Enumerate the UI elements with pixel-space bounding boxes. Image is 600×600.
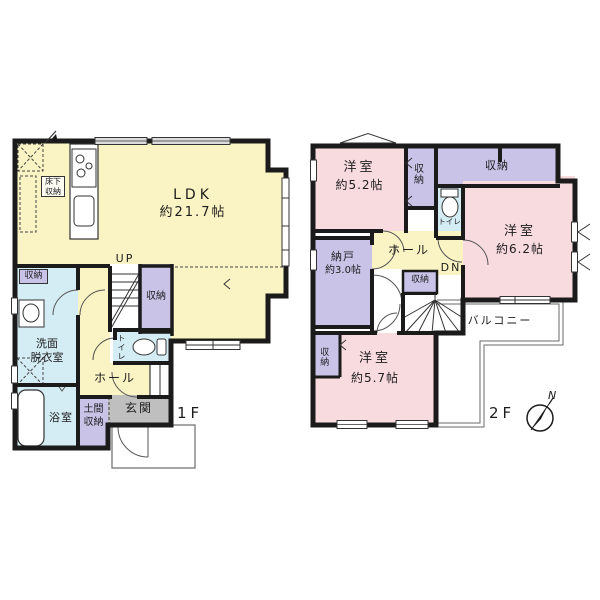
gable-vent-icon (340, 134, 396, 144)
shoe-closet (150, 364, 171, 396)
corner-flag-icon (45, 131, 58, 143)
label-toilet-2f: トイレ (435, 217, 464, 226)
room-label-bedroom-a-size: 約5.2帖 (308, 178, 411, 193)
label-bedroom-c-closet: 収納 (317, 340, 328, 374)
washroom-line1: 洗面 (14, 337, 80, 351)
room-label-bedroom-c-size: 約5.7帖 (325, 371, 425, 386)
sink-icon (74, 196, 94, 226)
floor-label-1f: 1F (177, 404, 203, 423)
room-label-bedroom-b-name: 洋室 (475, 224, 565, 240)
floor-label-2f: 2F (489, 404, 515, 423)
doma-line1: 土間 (79, 404, 108, 417)
label-stairs-down: DN (431, 261, 471, 275)
label-underfloor-storage: 床下収納 (41, 176, 65, 197)
label-closet-a: 収納 (410, 152, 423, 196)
compass-icon (527, 398, 553, 431)
label-doma-storage: 土間収納 (79, 404, 108, 429)
toilet-fixture-1f (133, 339, 166, 355)
kitchen-counter (70, 144, 98, 239)
room-label-storage-room-name: 納戸 (320, 250, 366, 264)
underfloor-storage-line1: 床下 (42, 177, 64, 187)
closet-a-front (404, 210, 436, 233)
washbasin-icon (19, 300, 44, 327)
room-label-bedroom-c-name: 洋室 (330, 351, 420, 367)
doma-line2: 収納 (79, 417, 108, 430)
entrance-porch (112, 425, 195, 468)
floor-plan-canvas: LDK 約21.7帖 床下収納 UP 収納 収納 洗面脱衣室 トイレ ホール 浴… (0, 0, 600, 600)
stove-icon (72, 149, 96, 187)
room-label-bathroom: 浴室 (43, 411, 79, 425)
floor-plan-drawing (0, 0, 600, 600)
washroom-line2: 脱衣室 (14, 351, 80, 365)
room-label-ldk-size: 約21.7帖 (133, 205, 253, 221)
underfloor-storage-line2: 収納 (42, 187, 64, 197)
toilet-fixture-2f (441, 189, 458, 217)
room-label-storage-room-size: 約3.0帖 (313, 265, 373, 278)
room-label-ldk-name: LDK (143, 187, 243, 205)
label-stair-closet: 収納 (140, 291, 172, 304)
room-label-bedroom-b-size: 約6.2帖 (470, 242, 570, 257)
label-washroom-closet: 収納 (19, 269, 48, 284)
label-hall-closet: 収納 (406, 275, 434, 286)
label-toilet-1f: トイレ (116, 333, 126, 361)
compass-north-label: N (548, 389, 556, 403)
room-label-washroom: 洗面脱衣室 (14, 337, 80, 365)
label-balcony: バルコニー (456, 314, 544, 328)
bathtub-icon (18, 390, 44, 446)
room-label-bedroom-a-name: 洋室 (313, 160, 406, 176)
label-stairs-up: UP (108, 252, 142, 266)
label-closet-b: 収納 (473, 159, 521, 173)
room-label-hall-1f: ホール (83, 371, 147, 386)
room-label-hall-2f: ホール (378, 243, 440, 258)
room-label-entrance: 玄関 (112, 401, 166, 416)
